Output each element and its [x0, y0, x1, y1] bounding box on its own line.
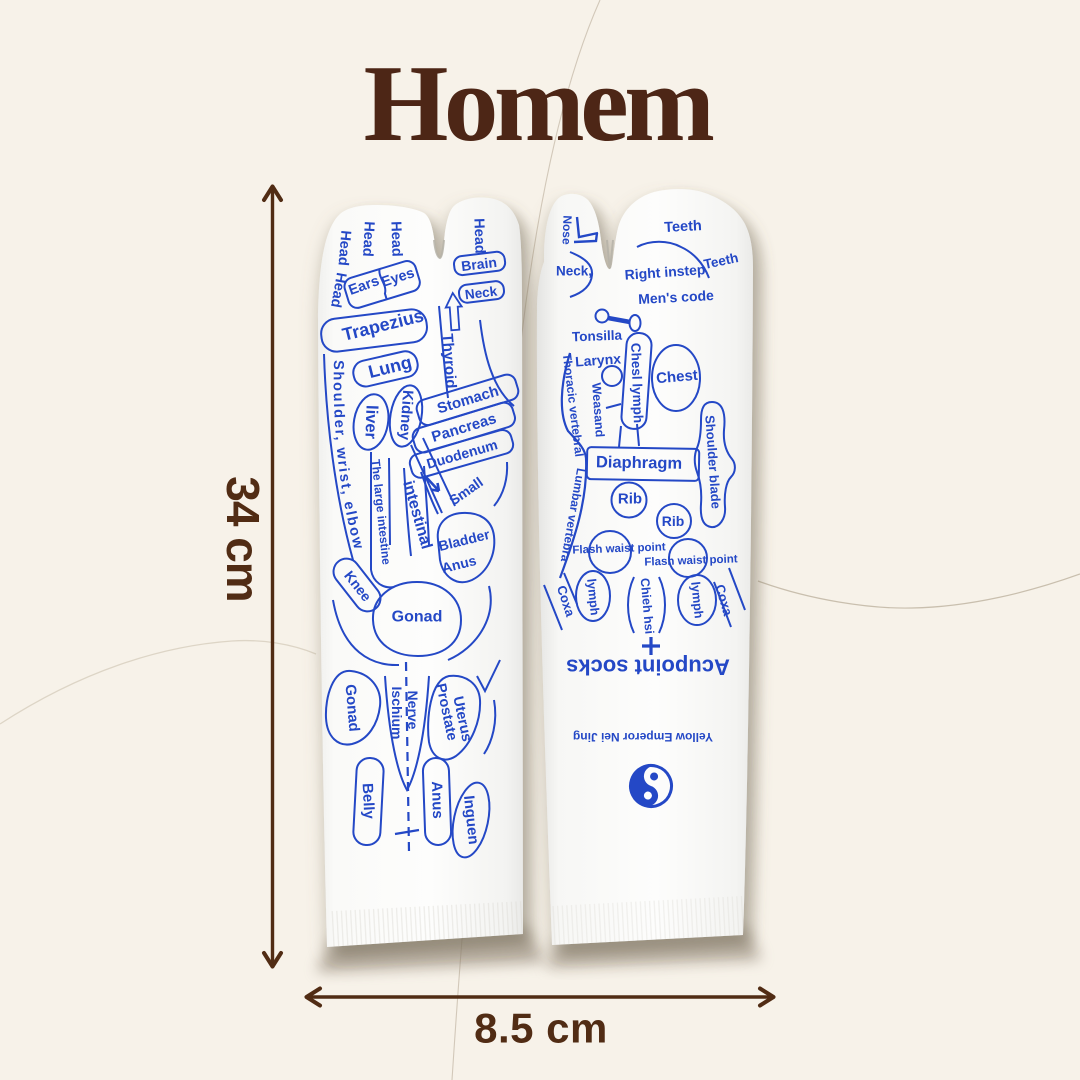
svg-text:Homem: Homem: [364, 43, 713, 164]
svg-text:Head: Head: [334, 230, 353, 267]
svg-text:Chesl lymph: Chesl lymph: [628, 343, 646, 424]
svg-text:Acupoint socks: Acupoint socks: [566, 655, 730, 680]
svg-text:Belly: Belly: [359, 783, 378, 820]
svg-text:Chest: Chest: [655, 367, 698, 388]
svg-text:Head: Head: [470, 218, 487, 254]
svg-text:Diaphragm: Diaphragm: [596, 453, 682, 473]
svg-text:Rib: Rib: [662, 513, 685, 529]
svg-text:Neck,: Neck,: [556, 264, 592, 279]
svg-text:Yellow Emperor Nei Jing: Yellow Emperor Nei Jing: [573, 730, 713, 744]
svg-text:Larynx: Larynx: [575, 350, 622, 369]
svg-text:Teeth: Teeth: [664, 218, 702, 236]
svg-text:Ischium: Ischium: [389, 687, 405, 740]
svg-text:liver: liver: [361, 405, 380, 440]
svg-text:Anus: Anus: [428, 781, 446, 819]
svg-text:Tonsilla: Tonsilla: [572, 328, 623, 345]
svg-text:34 cm: 34 cm: [217, 476, 269, 601]
svg-text:Head: Head: [359, 221, 377, 257]
svg-text:Gonad: Gonad: [392, 609, 443, 626]
svg-text:Kidney: Kidney: [396, 389, 416, 441]
svg-text:Rib: Rib: [618, 491, 642, 508]
svg-text:Nerve: Nerve: [405, 691, 421, 730]
svg-text:Head: Head: [387, 221, 404, 257]
svg-text:Nose: Nose: [559, 215, 574, 245]
svg-text:8.5 cm: 8.5 cm: [474, 1005, 608, 1052]
